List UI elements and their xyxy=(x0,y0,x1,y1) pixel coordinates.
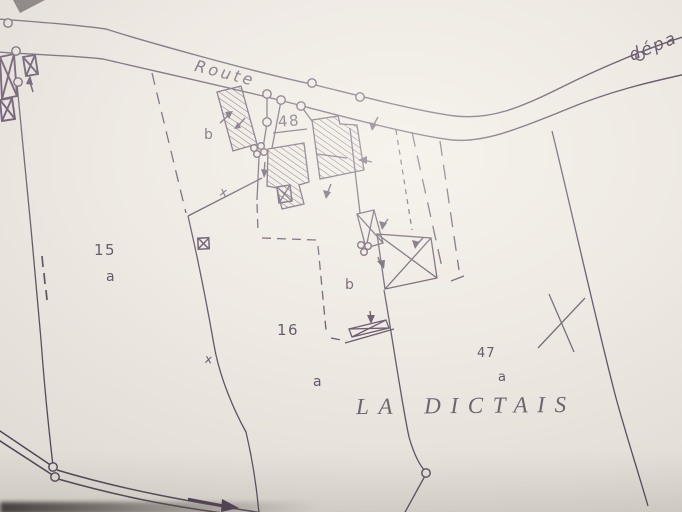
subdivision-label-b-west: b xyxy=(204,128,213,142)
parcel-sub-15: a xyxy=(106,270,115,284)
cadastral-map: Route dépa 48 b b 15 a 16 a 47 a x x LA … xyxy=(0,0,682,512)
parcel-sub-47: a xyxy=(498,371,506,384)
place-name-word2: DICTAIS xyxy=(424,393,576,418)
buildings-hatched xyxy=(217,86,364,209)
pointer-arrow-icon xyxy=(367,311,375,324)
path-edges xyxy=(0,429,263,512)
building-hatched-east xyxy=(312,116,364,179)
road-edges xyxy=(0,19,682,140)
pointer-arrow-icon xyxy=(369,117,378,131)
pointer-arrow-icon xyxy=(26,75,33,92)
boundary-west xyxy=(17,84,53,466)
subdivision-label-b-east: b xyxy=(345,278,354,292)
light-buildings-crossed xyxy=(349,210,437,337)
photo-corner-mark xyxy=(13,0,45,13)
building-small-annex xyxy=(277,185,292,203)
pointer-arrow-icon xyxy=(412,238,423,249)
crossed-building-large xyxy=(377,234,437,289)
survey-cross-mark xyxy=(538,294,585,352)
parcel-sub-16: a xyxy=(313,375,322,389)
parcel-number-15: 15 xyxy=(94,243,116,258)
road-north-edge xyxy=(0,19,682,117)
crossed-annex-long xyxy=(349,320,389,337)
parcel-number-16: 16 xyxy=(277,323,299,338)
parcel-number-47: 47 xyxy=(477,347,496,360)
place-name: LA DICTAIS xyxy=(356,393,576,418)
pointer-arrow-icon xyxy=(323,184,331,199)
boundary-16-47-foot xyxy=(404,474,426,512)
crossed-square-symbol xyxy=(198,238,210,250)
pointer-arrow-icon xyxy=(379,219,388,230)
boundary-16-47-lower xyxy=(384,290,426,472)
place-name-word1: LA xyxy=(356,395,402,418)
parcel-number-48: 48 xyxy=(278,113,301,130)
building-hatched-west xyxy=(217,86,257,151)
base-line-under-annex xyxy=(345,329,394,343)
boundary-15-16 xyxy=(188,216,259,512)
boundary-15-16-dashed xyxy=(152,73,186,213)
